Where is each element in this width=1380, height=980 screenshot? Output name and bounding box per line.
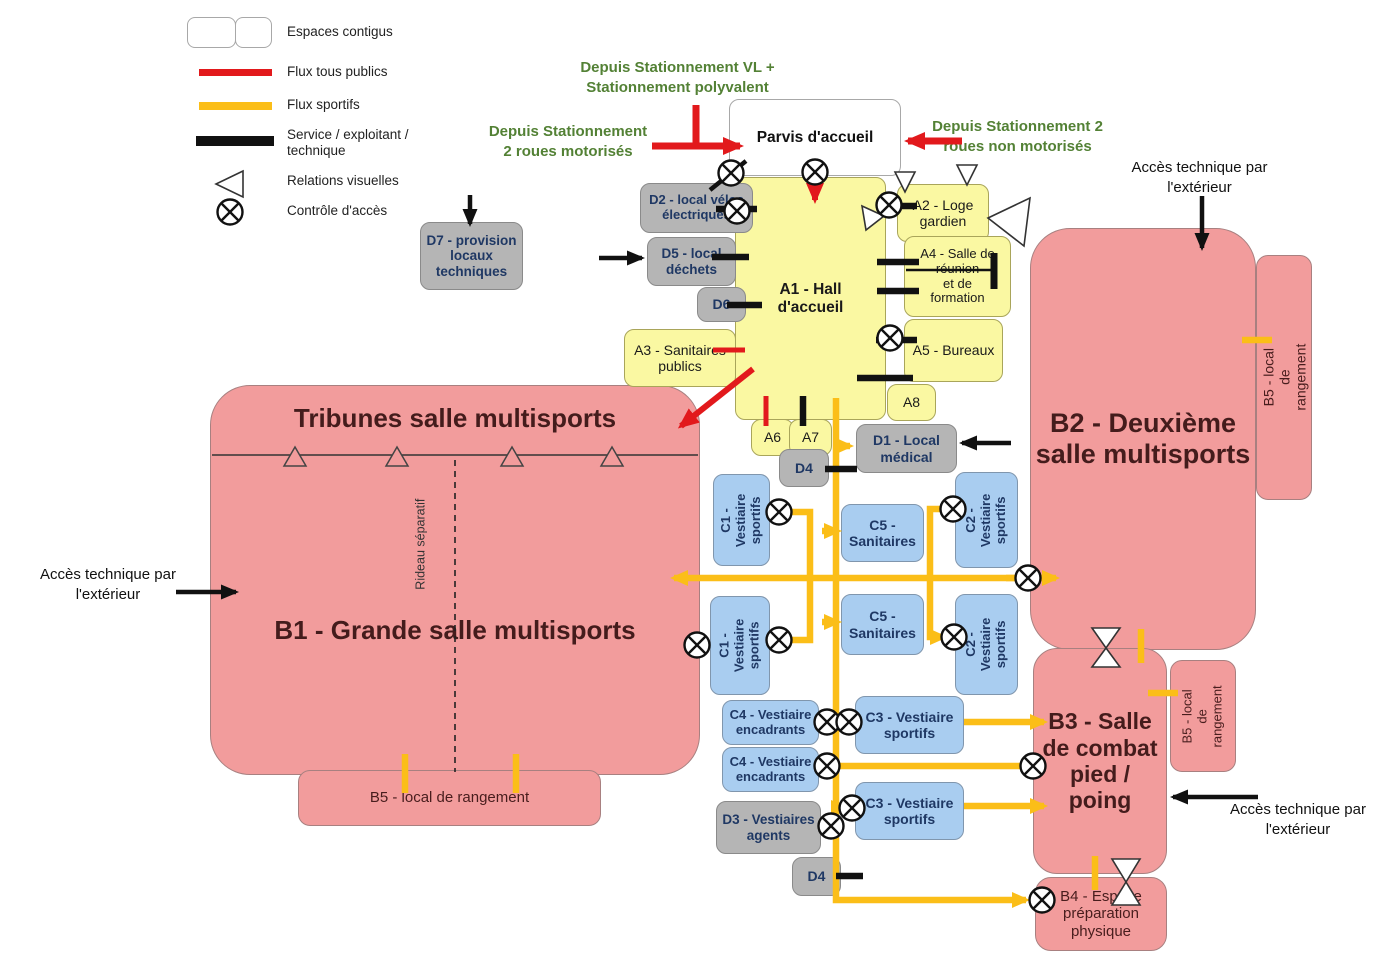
label-depuis-2roues-non-motorises: Depuis Stationnement 2 roues non motoris… <box>930 117 1105 156</box>
node-a4-salle-reunion: A4 - Salle de réunion et de formation <box>904 236 1011 317</box>
node-c4-encadrants-haut: C4 - Vestiaire encadrants <box>722 700 819 745</box>
label-depuis-2roues-motorises: Depuis Stationnement 2 roues motorisés <box>483 122 653 161</box>
label-b1: B1 - Grande salle multisports <box>230 615 680 646</box>
node-parvis-accueil: Parvis d'accueil <box>729 99 901 176</box>
node-a1-hall-accueil: A1 - Hall d'accueil <box>735 177 886 420</box>
legend-service-label: Service / exploitant / technique <box>287 127 409 159</box>
node-c3-vestiaire-haut: C3 - Vestiaire sportifs <box>855 696 964 754</box>
node-c1-vestiaire-haut: C1 - Vestiaire sportifs <box>713 474 770 566</box>
node-a3-sanitaires-publics: A3 - Sanitaires publics <box>624 329 736 387</box>
node-b5-sous-b1: B5 - local de rangement <box>298 770 601 826</box>
node-b2-deuxieme-salle: B2 - Deuxième salle multisports <box>1030 228 1256 650</box>
legend-flux-sportifs-label: Flux sportifs <box>287 97 360 113</box>
functional-diagram: Espaces contigus Flux tous publics Flux … <box>0 0 1380 980</box>
label-rideau-separatif: Rideau séparatif <box>406 462 436 627</box>
node-d1-local-medical: D1 - Local médical <box>856 424 957 473</box>
node-b5-droite-b3: B5 - local de rangement <box>1170 660 1236 772</box>
legend-relations-visuelles-label: Relations visuelles <box>287 173 399 189</box>
node-c5-sanitaires-bas: C5 - Sanitaires <box>841 594 924 655</box>
legend-espaces-contigus-label: Espaces contigus <box>287 24 393 40</box>
node-b3-salle-combat: B3 - Salle de combat pied / poing <box>1033 648 1167 874</box>
legend-contiguous-swatch-2 <box>235 17 272 48</box>
label-tribunes: Tribunes salle multisports <box>230 403 680 434</box>
node-a5-bureaux: A5 - Bureaux <box>904 319 1003 382</box>
label-acces-technique-haut-droit: Accès technique par l'extérieur <box>1122 158 1277 197</box>
label-acces-technique-bas-droit: Accès technique par l'extérieur <box>1218 800 1378 839</box>
access-control-icon-d3 <box>819 814 844 839</box>
legend-flux-sportifs-swatch <box>199 102 272 110</box>
legend-service-swatch <box>196 136 274 146</box>
access-control-icon-c1-bas <box>767 628 792 653</box>
node-c1-vestiaire-bas: C1 - Vestiaire sportifs <box>710 596 770 695</box>
node-a8: A8 <box>887 384 936 421</box>
access-control-icon-c1-haut <box>767 500 792 525</box>
flux-boucle-c1 <box>779 512 810 640</box>
node-c2-vestiaire-bas: C2 - Vestiaire sportifs <box>955 594 1018 695</box>
node-c2-vestiaire-haut: C2 - Vestiaire sportifs <box>955 472 1018 568</box>
legend-contiguous-swatch-1 <box>187 17 236 48</box>
legend-flux-publics-label: Flux tous publics <box>287 64 388 80</box>
label-acces-technique-gauche: Accès technique par l'extérieur <box>28 565 188 604</box>
node-c4-encadrants-bas: C4 - Vestiaire encadrants <box>722 747 819 792</box>
node-d3-vestiaires-agents: D3 - Vestiaires agents <box>716 801 821 854</box>
flux-boucle-c2 <box>930 509 953 637</box>
node-b1-grande-salle <box>210 385 700 775</box>
label-depuis-stationnement-vl: Depuis Stationnement VL + Stationnement … <box>555 58 800 97</box>
node-a2-loge-gardien: A2 - Loge gardien <box>897 184 989 242</box>
legend-flux-publics-swatch <box>199 69 272 76</box>
node-c5-sanitaires-haut: C5 - Sanitaires <box>841 504 924 562</box>
legend-controle-acces-label: Contrôle d'accès <box>287 203 387 219</box>
node-d7-provision-locaux: D7 - provision locaux techniques <box>420 222 523 290</box>
node-b4-preparation-physique: B4 - Espace préparation physique <box>1035 877 1167 951</box>
access-control-icon-legende <box>218 200 243 225</box>
node-b5-droite-b2: B5 - local de rangement <box>1256 255 1312 500</box>
relation-icon-a2-2 <box>957 165 977 185</box>
node-d2-local-velos: D2 - local vélos électriques <box>640 183 753 233</box>
relation-icon-legende <box>216 171 243 197</box>
node-d4-haut: D4 <box>779 449 829 487</box>
node-d5-local-dechets: D5 - local déchets <box>647 237 736 286</box>
node-d4-bas: D4 <box>792 857 841 896</box>
node-c3-vestiaire-bas: C3 - Vestiaire sportifs <box>855 782 964 840</box>
node-d6: D6 <box>697 287 746 322</box>
